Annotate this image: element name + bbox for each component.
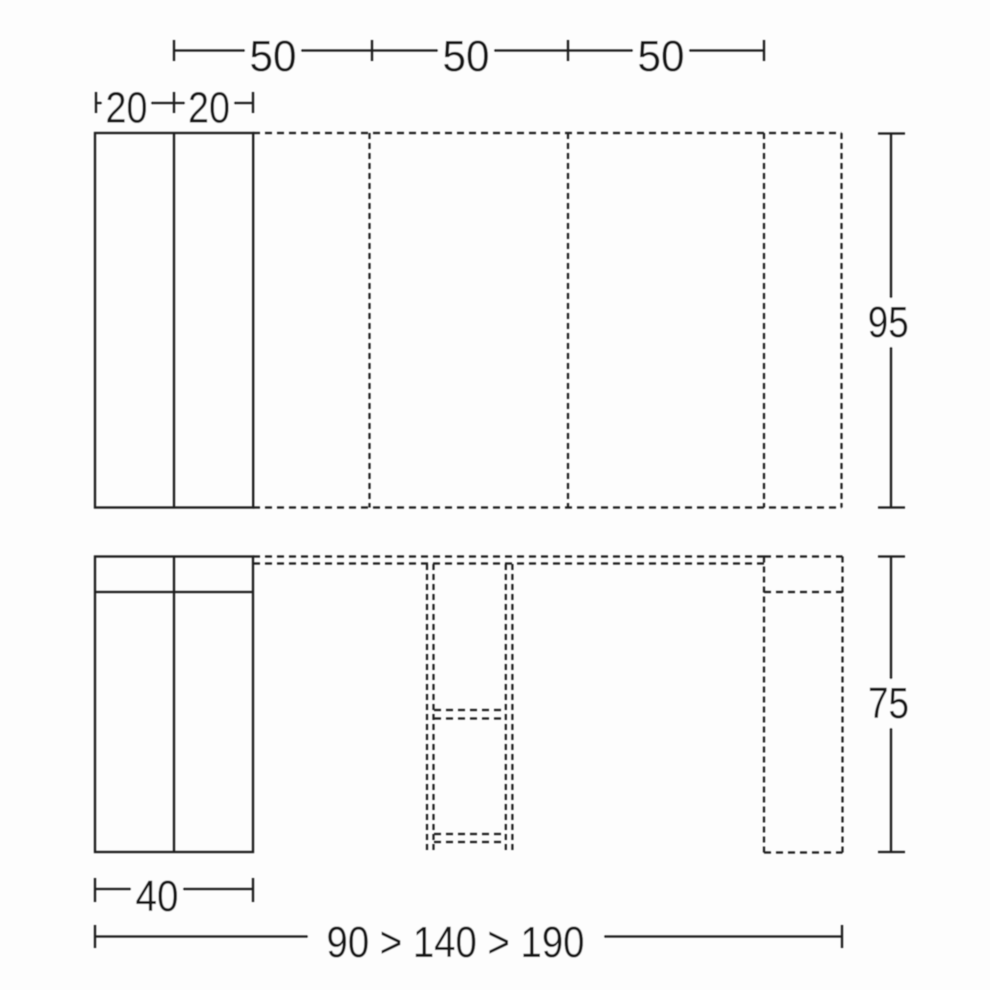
svg-text:90 > 140 > 190: 90 > 140 > 190: [327, 918, 585, 967]
svg-text:50: 50: [443, 32, 490, 81]
svg-text:75: 75: [868, 679, 909, 728]
svg-text:50: 50: [250, 32, 297, 81]
svg-text:95: 95: [868, 298, 909, 347]
svg-text:40: 40: [136, 872, 179, 921]
svg-text:50: 50: [638, 32, 685, 81]
svg-text:20: 20: [188, 84, 230, 133]
svg-text:20: 20: [106, 84, 148, 133]
